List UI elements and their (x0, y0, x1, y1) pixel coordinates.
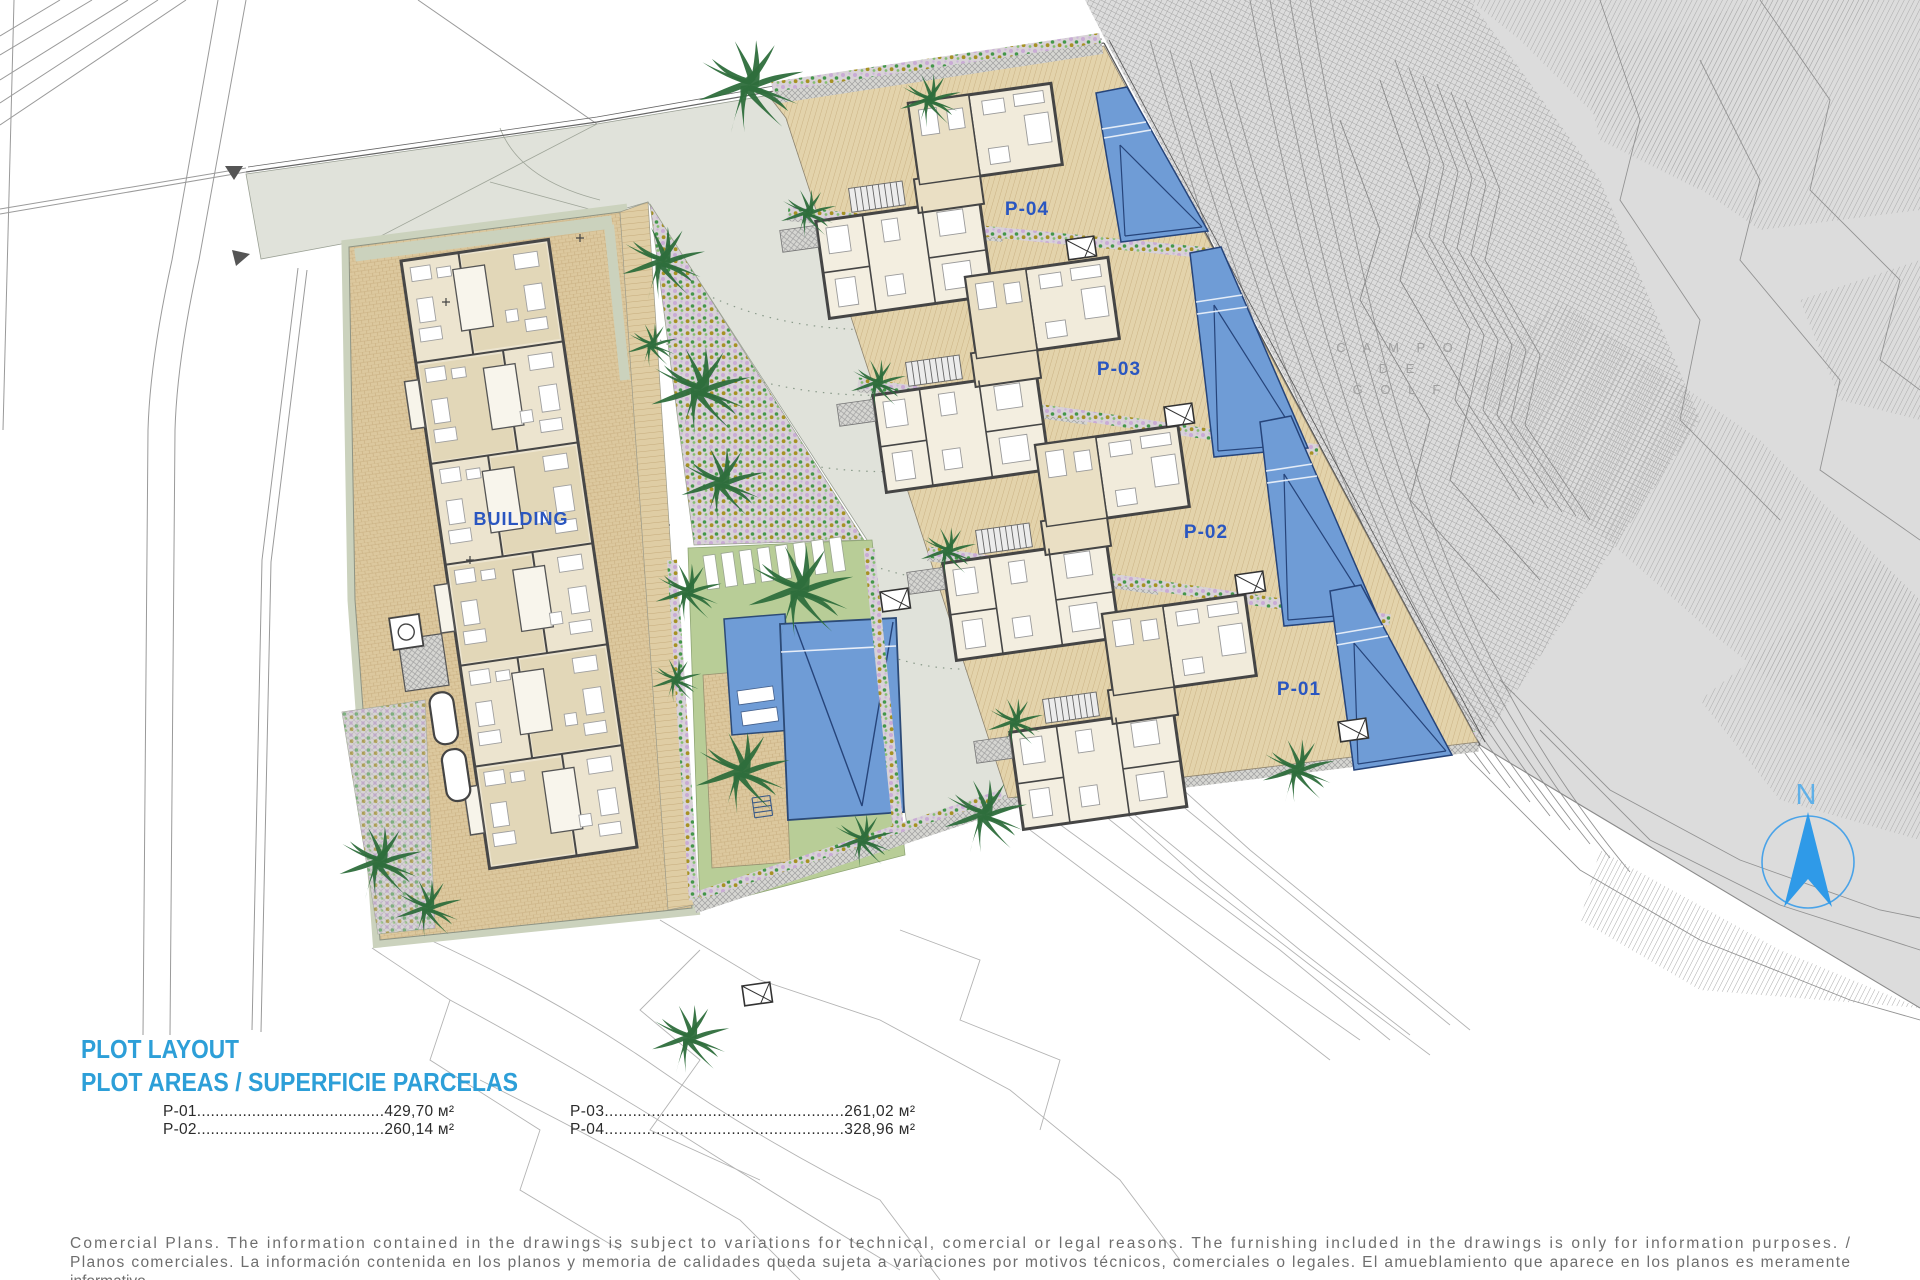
svg-text:P-04: P-04 (1005, 199, 1049, 220)
svg-text:P-03: P-03 (1097, 359, 1141, 380)
svg-text:Planos comerciales. La informa: Planos comerciales. La información conte… (70, 1254, 1850, 1271)
svg-text:P-04..........................: P-04....................................… (570, 1121, 915, 1138)
svg-text:P-01..........................: P-01....................................… (163, 1103, 454, 1120)
svg-text:N: N (1796, 779, 1817, 811)
svg-text:P-03..........................: P-03....................................… (570, 1103, 915, 1120)
svg-text:C A M P O: C A M P O (1336, 340, 1459, 355)
svg-text:P-02..........................: P-02....................................… (163, 1121, 454, 1138)
svg-text:P-02: P-02 (1184, 522, 1228, 543)
svg-text:informativo.: informativo. (70, 1273, 150, 1280)
svg-text:D E: D E (1379, 361, 1422, 376)
svg-text:PLOT AREAS / SUPERFICIE PARCEL: PLOT AREAS / SUPERFICIE PARCELAS (81, 1067, 518, 1097)
svg-text:PLOT LAYOUT: PLOT LAYOUT (81, 1034, 239, 1064)
svg-text:G O L F: G O L F (1353, 382, 1448, 397)
svg-text:BUILDING: BUILDING (474, 509, 569, 529)
svg-text:P-01: P-01 (1277, 679, 1321, 700)
svg-text:Comercial Plans. The informati: Comercial Plans. The information contain… (70, 1235, 1851, 1252)
